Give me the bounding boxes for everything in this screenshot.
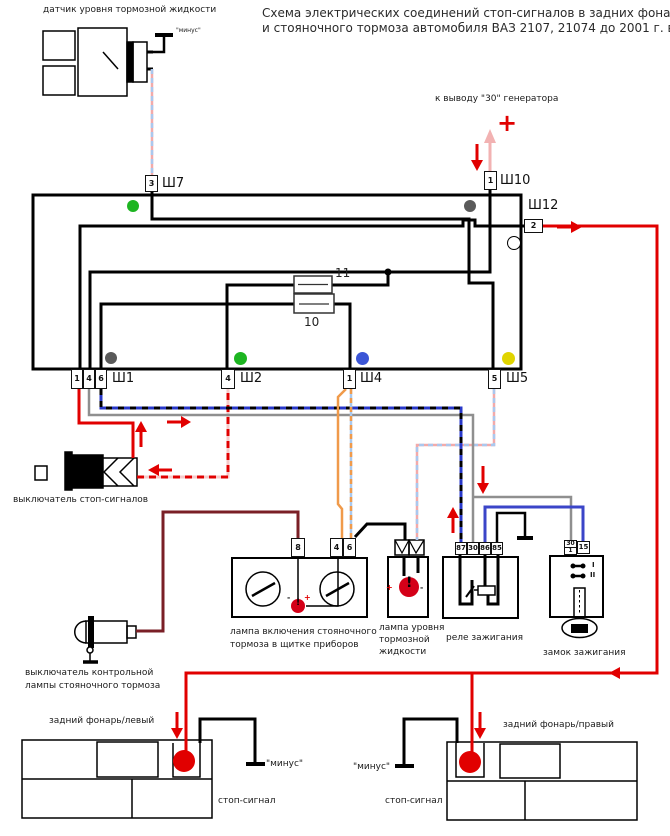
parking-switch-label-line1: выключатель контрольной (25, 668, 153, 678)
pin-box-1: 1 (71, 369, 83, 389)
pin-box-4: 4 (83, 369, 95, 389)
pin-box-86: 86 (479, 542, 491, 555)
wire-dark-red-parking (136, 512, 298, 631)
ignition-lock-drawing (550, 556, 603, 638)
pin-box-2: 2 (524, 219, 543, 233)
pin-box-85: 85 (491, 542, 503, 555)
pin-box-4: 4 (330, 538, 343, 557)
bus-sh10-to-sh1-4 (90, 190, 490, 369)
fuse-11-number: 11 (335, 266, 350, 280)
pin-box-3: 3 (145, 175, 158, 192)
connector-label-Ш5: Ш5 (506, 371, 528, 386)
page-title-line2: и стояночного тормоза автомобиля ВАЗ 210… (262, 21, 670, 35)
fuse-10-number: 10 (304, 315, 319, 329)
pin-box-5: 5 (488, 369, 501, 389)
fluid-lamp-label-line1: лампа уровня (379, 623, 444, 633)
arrow-left-brake-return (148, 464, 172, 476)
generator-terminal-label: к выводу "30" генератора (435, 94, 558, 104)
fluid-sensor-label: датчик уровня тормозной жидкости (43, 5, 216, 15)
cluster-lamp-minus-sign: - (287, 593, 290, 602)
page-title-line1: Схема электрических соединений стоп-сигн… (262, 6, 670, 20)
connector-label-Ш12: Ш12 (528, 198, 558, 213)
green-dot-sh7 (127, 200, 139, 212)
fluid-lamp-minus-sign: - (420, 583, 423, 592)
fluid-lamp-label-line2: тормозной (379, 635, 430, 645)
fuse-11 (294, 276, 332, 293)
minus-label-right: "минус" (353, 762, 390, 772)
wire-red-brake-feed (79, 389, 133, 458)
parking-switch-label-line2: лампы стояночного тормоза (25, 681, 160, 691)
mounting-block (33, 190, 524, 369)
ignition-relay-label: реле зажигания (446, 633, 523, 643)
ignition-relay-drawing (443, 555, 518, 618)
pin-box-8: 8 (291, 538, 305, 557)
stop-signal-label-right: стоп-сигнал (385, 796, 443, 806)
ignition-position-I-mark: I (592, 561, 595, 569)
stop-signal-label-left: стоп-сигнал (218, 796, 276, 806)
arrow-up-brake-switch (135, 421, 147, 447)
pin-box-6: 6 (95, 369, 107, 389)
green-dot-sh2 (234, 352, 247, 365)
junction-dot (385, 269, 392, 276)
ignition-lock-label: замок зажигания (543, 648, 626, 658)
pin-box-6: 6 (343, 538, 356, 557)
fluid-sensor-drawing (43, 28, 173, 96)
white-dot-sh12 (507, 236, 521, 250)
bus-fuse10-to-sh1-6 (101, 304, 294, 369)
fuse-10 (294, 294, 334, 313)
minus-label-left: "минус" (266, 759, 303, 769)
plus-symbol: + (497, 109, 517, 137)
arrow-down-lamp-left (171, 712, 183, 739)
pin-box-15: 15 (577, 541, 590, 554)
arrow-down-lamp-right (474, 712, 486, 739)
arrow-up-relay87 (447, 507, 459, 533)
wiring-diagram-canvas: датчик уровня тормозной жидкости Схема э… (0, 0, 670, 836)
arrow-down-red-generator (471, 144, 483, 171)
stop-bulb-left (173, 750, 195, 772)
cluster-lamp-plus-sign: + (304, 593, 311, 602)
pin-box-30: 30 (467, 542, 479, 555)
fluid-lamp-exclaim: ! (406, 575, 412, 591)
wire-gray-30 (89, 389, 571, 542)
pin-box-1: 1 (484, 171, 497, 190)
cluster-lamp-exclaim: ! (296, 598, 300, 608)
ignition-position-II-mark: II (590, 571, 595, 579)
bus-fuse10-to-sh4 (334, 304, 350, 369)
arrow-down-gray (477, 466, 489, 494)
brake-switch-label: выключатель стоп-сигналов (13, 495, 148, 505)
wire-orange (338, 389, 346, 538)
stop-bulb-right (459, 751, 481, 773)
fluid-lamp-plus-sign: + (386, 583, 393, 592)
ground-lamp-left (200, 719, 255, 763)
pin-box-87: 87 (455, 542, 467, 555)
yellow-dot-sh5 (502, 352, 515, 365)
blue-dot-sh4 (356, 352, 369, 365)
arrow-up-pink-generator (484, 129, 496, 171)
rear-lamp-left-label: задний фонарь/левый (49, 716, 154, 726)
pin-box-1: 1 (343, 369, 356, 389)
brake-switch-drawing (35, 452, 137, 490)
connector-label-Ш10: Ш10 (500, 173, 530, 188)
sensor-minus-label: "минус" (176, 27, 201, 34)
connector-label-Ш4: Ш4 (360, 371, 382, 386)
gray-dot-sh10 (464, 200, 476, 212)
arrow-right-sh12 (557, 221, 582, 233)
cluster-label-line2: тормоза в щитке приборов (230, 640, 359, 650)
fluid-lamp-label-line3: жидкости (379, 647, 426, 657)
connector-label-Ш1: Ш1 (112, 371, 134, 386)
instrument-cluster-drawing (232, 557, 367, 617)
parking-switch-drawing (75, 616, 136, 662)
arrow-right-brake-feed (167, 416, 191, 428)
pin-box-4: 4 (221, 369, 235, 389)
wire-cluster-to-fluid-lamp (355, 524, 405, 540)
rear-lamp-right-label: задний фонарь/правый (503, 720, 614, 730)
gray-dot-sh1 (105, 352, 117, 364)
arrow-left-bottom-feed (609, 667, 634, 679)
connector-label-Ш2: Ш2 (240, 371, 262, 386)
pin-box-30-1: 301 (564, 540, 577, 555)
cluster-label-line1: лампа включения стояночного (230, 627, 377, 637)
diagram-drawing (0, 0, 670, 836)
connector-label-Ш7: Ш7 (162, 176, 184, 191)
